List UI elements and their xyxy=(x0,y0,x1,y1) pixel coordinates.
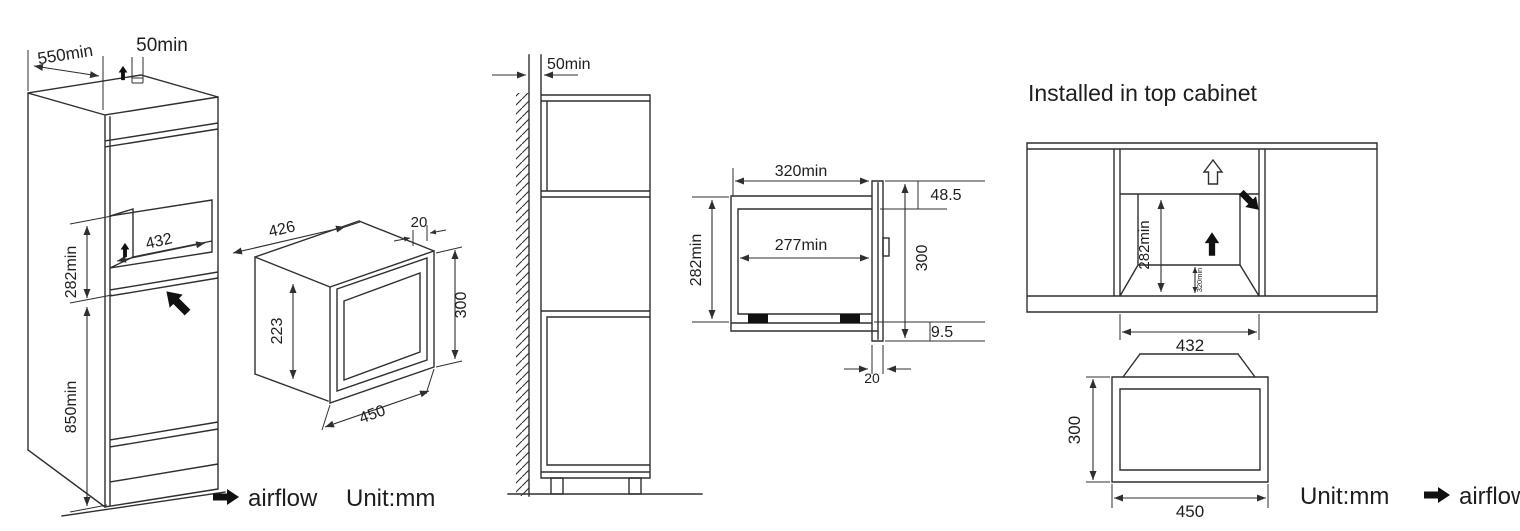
dim-282min-top-cabinet: 282min xyxy=(1136,220,1153,269)
dim-50min-wall: 50min xyxy=(547,56,591,73)
airflow-arrow-front xyxy=(160,285,194,319)
microwave-front-extension-lines xyxy=(1086,377,1268,508)
airflow-arrow-opening xyxy=(121,243,130,257)
microwave-outline xyxy=(255,221,434,403)
installation-diagram: 550min 50min 432 282min 850min 426 20 22… xyxy=(0,0,1520,531)
dim-50min-top: 50min xyxy=(136,35,188,56)
dim-320min-vent: 320min xyxy=(1195,268,1204,293)
dim-300-front: 300 xyxy=(453,292,470,319)
dim-450-width: 450 xyxy=(357,402,388,427)
microwave-foot-front xyxy=(840,314,860,323)
cabinet-foot-left xyxy=(551,478,563,494)
top-cabinet-front-view: Installed in top cabinet 282min 320min 4… xyxy=(1027,80,1377,355)
microwave-front-view: 300 450 xyxy=(1065,354,1268,521)
dim-282min-opening: 282min xyxy=(63,246,80,298)
dim-223-height: 223 xyxy=(269,318,286,345)
dim-850min: 850min xyxy=(63,381,80,433)
dim-arrow-20-right xyxy=(430,230,446,233)
dim-277min-body: 277min xyxy=(775,237,827,254)
side-view-outline xyxy=(508,55,702,496)
top-cabinet-title: Installed in top cabinet xyxy=(1028,80,1257,106)
dim-450-front-view: 450 xyxy=(1176,502,1204,521)
dim-9-5-overlap: 9.5 xyxy=(931,324,953,341)
legend-right: Unit:mm airflow xyxy=(1300,483,1520,510)
airflow-arrow-up-top-cabinet xyxy=(1205,232,1219,255)
dim-320min-depth: 320min xyxy=(775,163,827,180)
airflow-label-right: airflow xyxy=(1459,483,1520,510)
tall-cabinet-extension-lines xyxy=(28,50,143,512)
microwave-isometric-view: 426 20 223 300 450 xyxy=(233,214,470,430)
airflow-label-left: airflow xyxy=(248,485,318,512)
airflow-arrow-hollow xyxy=(1204,160,1222,184)
airflow-arrow-icon-left xyxy=(213,489,239,505)
wall-hatching xyxy=(516,93,529,496)
dim-282min-niche: 282min xyxy=(688,234,705,286)
dim-550min: 550min xyxy=(36,41,94,68)
unit-label-right: Unit:mm xyxy=(1300,483,1389,510)
tall-cabinet-isometric-view: 550min 50min 432 282min 850min xyxy=(28,35,225,516)
dim-48-5-clearance: 48.5 xyxy=(930,187,961,204)
microwave-front-outline xyxy=(1112,354,1268,482)
unit-label-left: Unit:mm xyxy=(346,485,435,512)
airflow-arrow-icon-right xyxy=(1424,487,1450,503)
dim-300-front-section: 300 xyxy=(914,245,931,272)
wall-side-view: 50min xyxy=(492,55,702,496)
legend-left: airflow Unit:mm xyxy=(213,485,435,512)
microwave-foot-back xyxy=(748,314,768,323)
niche-section-view: 320min 277min 282min 48.5 300 9.5 20 xyxy=(688,163,985,386)
dim-432-width: 432 xyxy=(1176,336,1204,355)
dim-20-thickness: 20 xyxy=(864,370,880,386)
dim-20-frame: 20 xyxy=(411,214,428,231)
dim-426-depth: 426 xyxy=(267,218,297,241)
door-handle xyxy=(883,238,889,256)
cabinet-foot-right xyxy=(629,478,641,494)
installation-diagram-page: 550min 50min 432 282min 850min 426 20 22… xyxy=(0,0,1520,531)
tall-cabinet-outline xyxy=(28,75,225,516)
dim-300-front-view: 300 xyxy=(1065,416,1084,444)
